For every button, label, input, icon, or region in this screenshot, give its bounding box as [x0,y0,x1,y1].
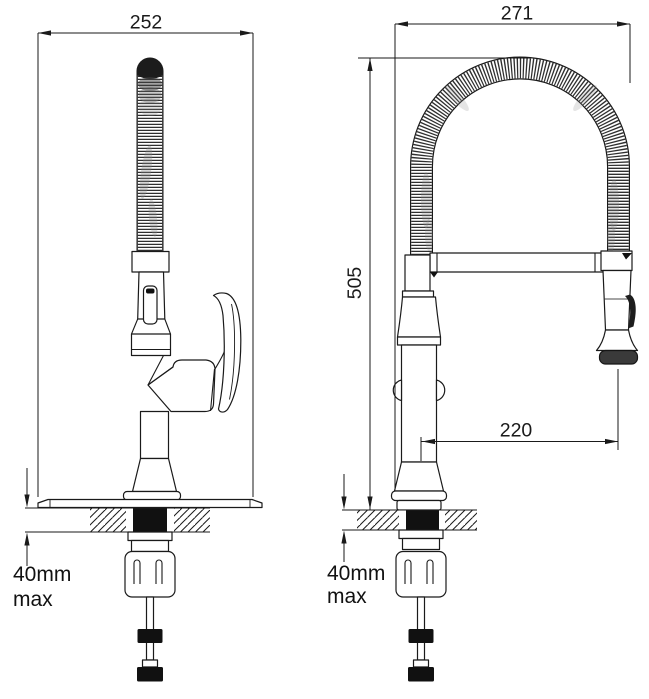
pull-down-hose-front [421,68,619,258]
arrowhead-right [617,21,630,26]
base-ring [124,492,181,501]
counter-max-label-line1: 40mm [327,562,385,585]
faucet-technical-drawing: 252 40mm max [0,0,649,699]
side-view: 252 40mm max [13,12,262,682]
spray-head-band [132,334,171,356]
body-column [141,412,169,459]
spray-head-body [603,271,631,331]
shank-collar [128,532,172,541]
base-flare [395,462,444,491]
base-flare [133,459,177,492]
mounting-hardware-side [125,532,175,682]
dimension-value-271: 271 [501,3,534,25]
mounting-shank [133,508,167,532]
threaded-rod [147,597,154,660]
arrowhead-up [367,58,372,71]
neck [405,255,430,291]
dimension-counter-front: 40mm max [327,474,385,608]
bracket-clip-left [430,272,438,278]
spray-head-front [597,271,638,365]
dimension-reach: 220 [421,369,618,461]
rod-nut [138,629,163,643]
hose-shading [607,222,615,252]
mounting-nut [125,552,175,598]
dimension-counter-side: 40mm max [13,468,71,611]
drawing-sheet: 252 40mm max [0,0,649,699]
spray-head-flare [597,330,638,351]
spray-nozzle [600,351,638,365]
hose-ferrule [132,252,169,273]
arrowhead-right [605,439,618,444]
spout-joint [148,360,215,412]
rod-collar [414,660,429,667]
arrowhead-right [240,30,253,35]
counter-max-label-line2: max [327,585,367,608]
arrowhead-down [367,497,372,510]
counter-max-label-line2: max [13,588,53,611]
spray-button [146,289,155,294]
shank-neck [132,541,169,552]
rod-end-nut [408,667,434,682]
mounting-hardware-front [396,530,446,682]
arrowhead-down [24,495,29,508]
front-view: 271 505 220 40mm max [327,3,638,682]
rod-end-nut [137,667,163,682]
shank-neck [403,539,440,550]
mounting-shank [406,510,439,530]
spray-head-side [132,252,171,356]
shoulder-ring [398,337,441,345]
hose-end-cap [137,58,163,79]
shank-collar [399,530,443,539]
base-ring-lower [397,501,441,511]
dimension-value-220: 220 [500,420,533,442]
arrowhead-left [38,30,51,35]
dimension-value-505: 505 [344,267,366,300]
faucet-body-side [124,412,181,501]
faucet-body-front [392,255,447,510]
deck-and-counter-side [25,500,262,533]
body-taper [398,297,441,337]
rod-nut [409,629,434,643]
base-ring-upper [392,491,447,501]
arrowhead-up [341,531,346,544]
bracket-bar [430,253,623,272]
hose-shading [139,98,161,116]
body-column [402,345,437,462]
counter-max-label-line1: 40mm [13,563,71,586]
arrowhead-down [341,497,346,510]
side-boss-right [437,380,445,401]
arrowhead-left [395,21,408,26]
deck-plate [38,500,262,508]
mounting-nut [396,552,446,598]
arrowhead-up [24,533,29,546]
dimension-value-252: 252 [130,12,163,34]
hose-shading [425,219,433,251]
lever-handle [214,293,241,412]
spout-bracket [430,251,632,278]
pull-down-hose-side [137,58,163,251]
neck-collar [403,291,434,297]
threaded-rod [418,597,425,660]
rod-collar [143,660,158,667]
counter-front [342,510,477,530]
